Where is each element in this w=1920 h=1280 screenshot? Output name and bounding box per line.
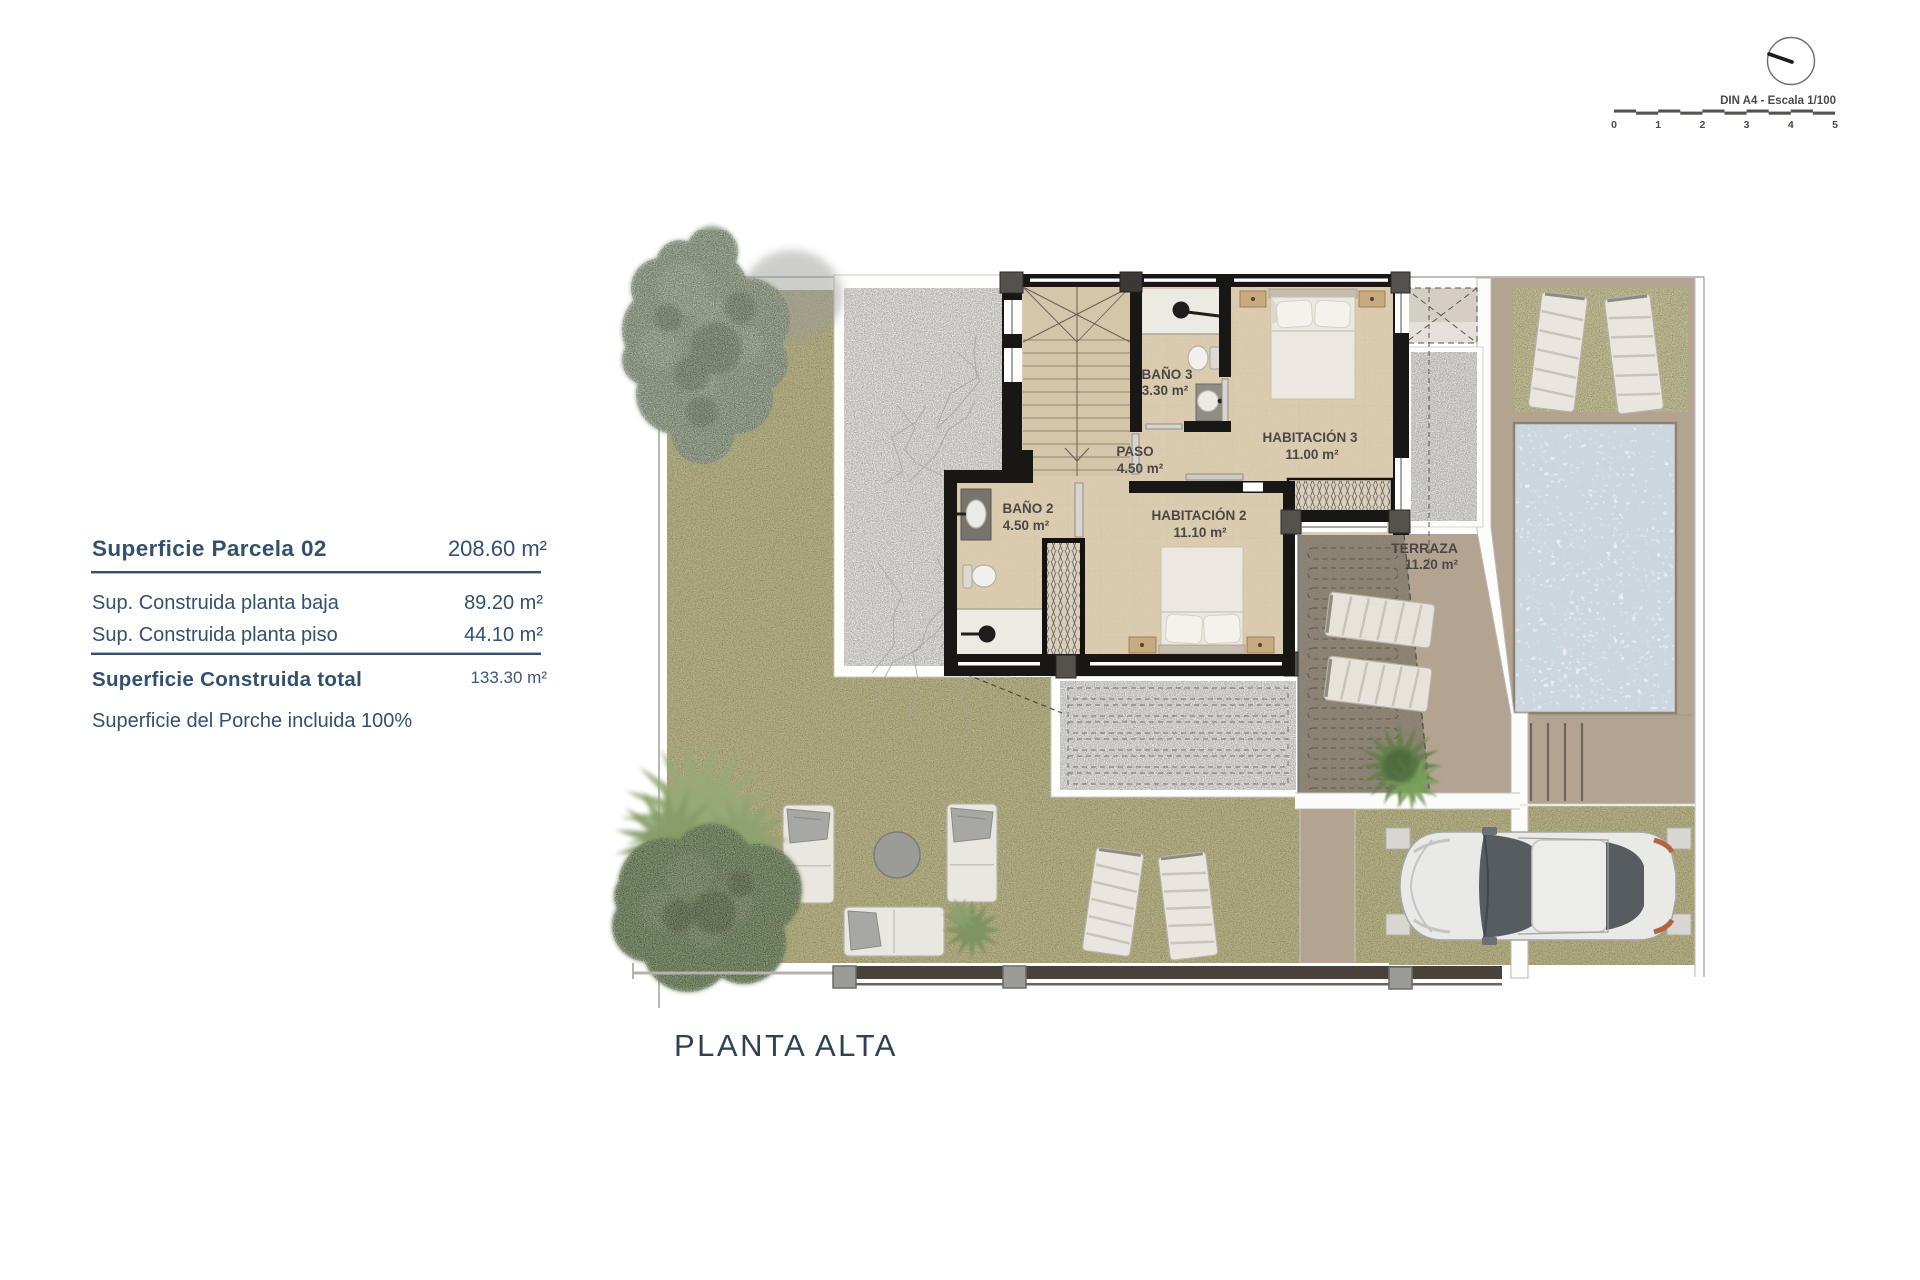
svg-text:Sup. Construida planta piso: Sup. Construida planta piso (92, 624, 338, 646)
svg-text:Sup. Construida planta baja: Sup. Construida planta baja (92, 592, 340, 614)
svg-text:Superficie Parcela 02: Superficie Parcela 02 (92, 536, 327, 561)
svg-text:5: 5 (1832, 119, 1838, 131)
svg-text:11.20 m²: 11.20 m² (1405, 557, 1459, 572)
svg-text:BAÑO 3: BAÑO 3 (1141, 367, 1192, 382)
svg-text:4.50 m²: 4.50 m² (1003, 518, 1050, 533)
svg-text:HABITACIÓN 3: HABITACIÓN 3 (1262, 430, 1357, 445)
svg-text:11.00 m²: 11.00 m² (1285, 447, 1339, 462)
svg-text:3.30 m²: 3.30 m² (1142, 383, 1189, 398)
svg-text:3: 3 (1744, 119, 1750, 131)
svg-text:Superficie Construida total: Superficie Construida total (92, 668, 362, 691)
svg-text:208.60 m²: 208.60 m² (448, 536, 547, 561)
svg-text:4.50 m²: 4.50 m² (1117, 461, 1164, 476)
svg-text:DIN A4 - Escala 1/100: DIN A4 - Escala 1/100 (1720, 95, 1836, 107)
svg-text:2: 2 (1699, 119, 1705, 131)
svg-text:TERRAZA: TERRAZA (1391, 540, 1458, 556)
svg-text:44.10 m²: 44.10 m² (464, 624, 543, 646)
svg-text:133.30 m²: 133.30 m² (470, 668, 547, 687)
svg-text:PLANTA ALTA: PLANTA ALTA (674, 1028, 898, 1063)
svg-text:BAÑO 2: BAÑO 2 (1002, 501, 1053, 516)
svg-text:89.20 m²: 89.20 m² (464, 592, 543, 614)
svg-text:PASO: PASO (1116, 444, 1153, 459)
svg-text:Superficie del Porche incluida: Superficie del Porche incluida 100% (92, 710, 412, 732)
svg-text:11.10 m²: 11.10 m² (1173, 525, 1227, 540)
svg-text:0: 0 (1611, 119, 1617, 131)
svg-text:4: 4 (1788, 119, 1794, 131)
svg-text:1: 1 (1655, 119, 1661, 131)
svg-text:HABITACIÓN 2: HABITACIÓN 2 (1151, 508, 1246, 523)
